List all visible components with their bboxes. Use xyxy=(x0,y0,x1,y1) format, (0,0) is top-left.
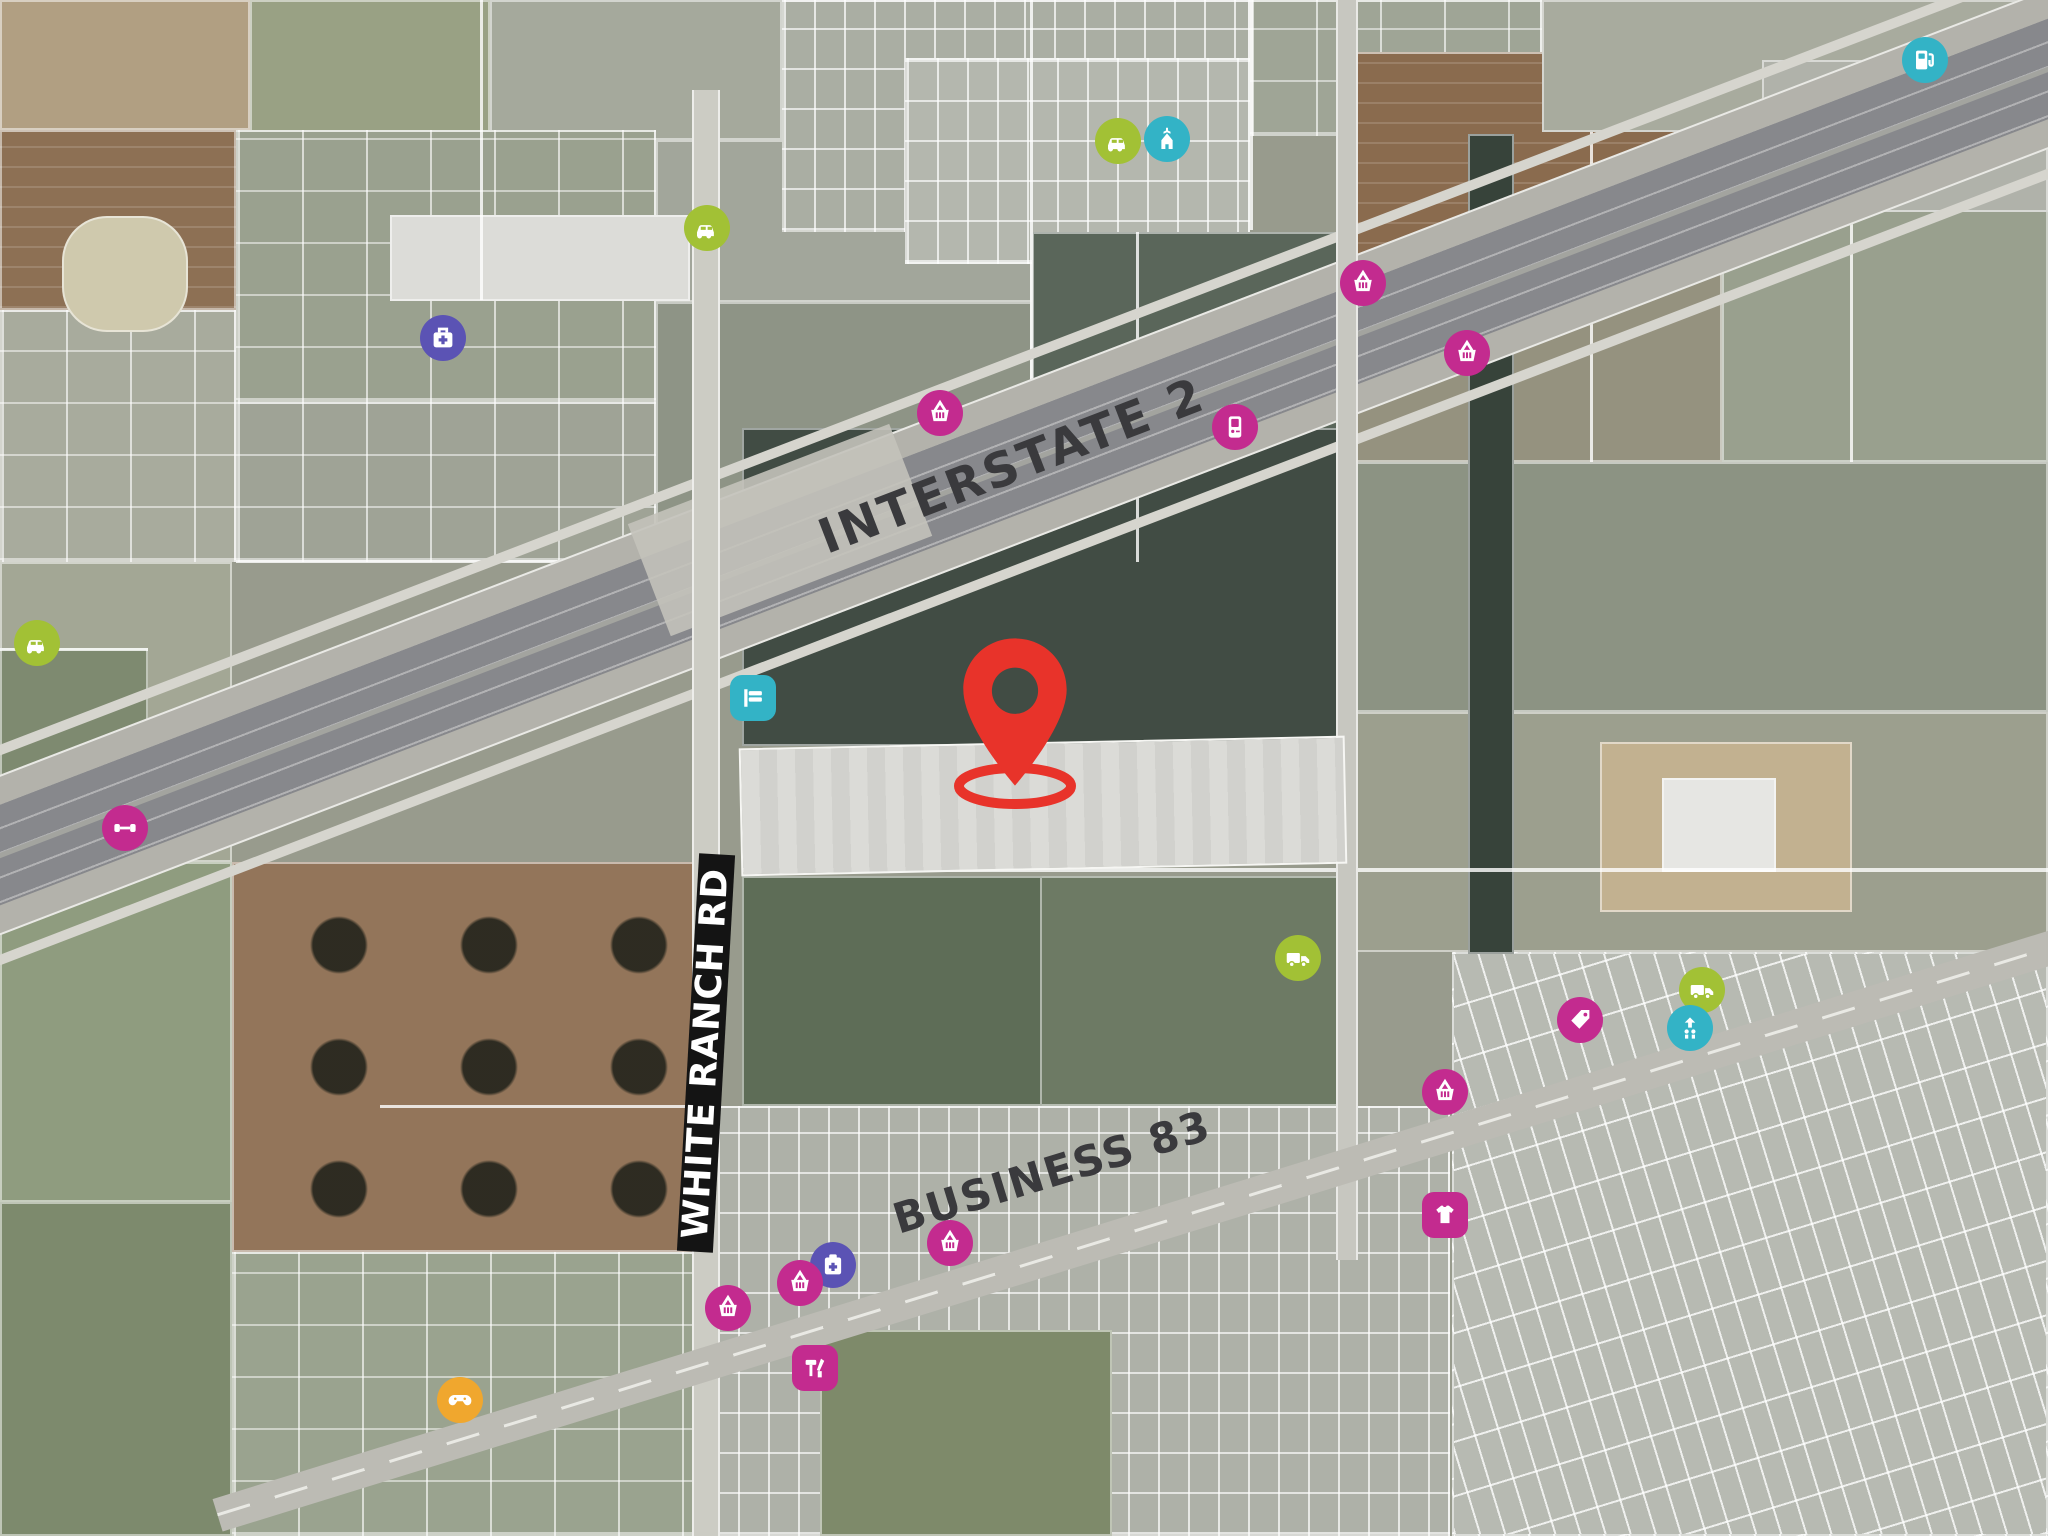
poi-shopping-basket-icon xyxy=(1340,260,1386,306)
field-patch xyxy=(742,876,1042,1106)
poi-shopping-basket-icon xyxy=(927,1220,973,1266)
aerial-map: WHITE RANCH RD INTERSTATE 2 BUSINESS 83 xyxy=(0,0,2048,1536)
parcel-line xyxy=(1250,0,1253,230)
poi-shopping-basket-icon xyxy=(917,390,963,436)
field-patch xyxy=(1662,778,1776,872)
field-patch xyxy=(62,216,188,332)
poi-church-icon xyxy=(1144,116,1190,162)
poi-shopping-basket-icon xyxy=(705,1285,751,1331)
field-patch xyxy=(1350,462,2048,712)
field-patch xyxy=(0,1202,232,1536)
north-south-road xyxy=(1336,0,1358,1260)
poi-game-console-icon xyxy=(1212,404,1258,450)
location-pin-icon xyxy=(954,636,1076,788)
field-patch xyxy=(232,862,706,1252)
poi-gas-pump-icon xyxy=(1902,37,1948,83)
field-patch xyxy=(0,0,250,130)
poi-shopping-basket-icon xyxy=(1444,330,1490,376)
poi-truck-icon xyxy=(1275,935,1321,981)
field-patch xyxy=(390,215,690,301)
poi-car-dealer-icon xyxy=(684,205,730,251)
poi-clothing-tshirt-icon xyxy=(1422,1192,1468,1238)
poi-car-wash-icon xyxy=(1667,1005,1713,1051)
poi-price-tag-icon xyxy=(1557,997,1603,1043)
poi-gym-dumbbell-icon xyxy=(102,805,148,851)
poi-car-dealer-icon xyxy=(14,620,60,666)
poi-gamepad-icon xyxy=(437,1377,483,1423)
field-patch xyxy=(0,310,236,562)
poi-shopping-basket-icon xyxy=(1422,1069,1468,1115)
poi-shopping-basket-icon xyxy=(777,1260,823,1306)
field-patch xyxy=(820,1330,1112,1536)
parcel-line xyxy=(380,1105,710,1108)
poi-hardware-tools-icon xyxy=(792,1345,838,1391)
field-patch xyxy=(250,0,490,132)
poi-medical-bag-icon xyxy=(420,315,466,361)
poi-car-dealer-icon xyxy=(1095,118,1141,164)
poi-motel-bed-icon xyxy=(730,675,776,721)
parcel-line xyxy=(480,0,483,300)
field-patch xyxy=(490,0,782,140)
